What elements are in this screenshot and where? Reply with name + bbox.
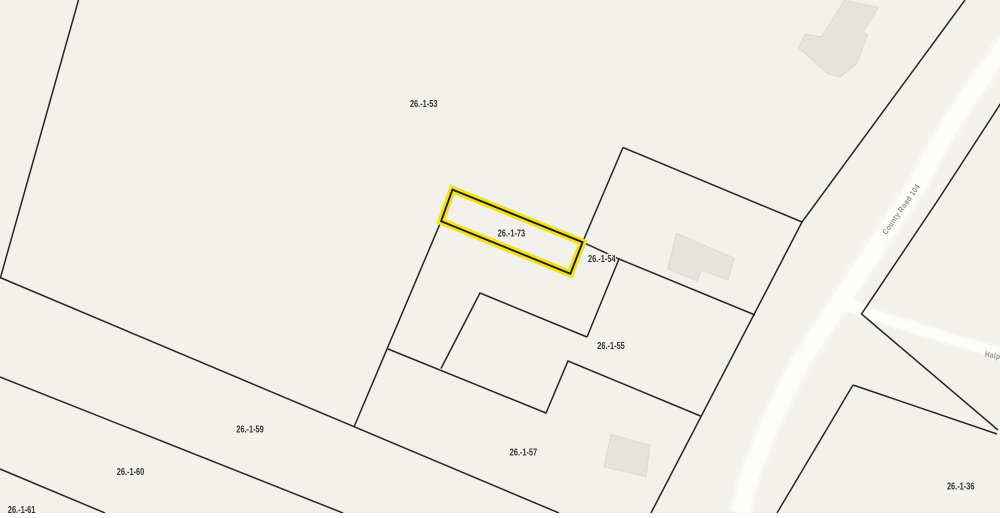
svg-text:26.-1-55: 26.-1-55 <box>597 340 625 351</box>
svg-text:26.-1-73: 26.-1-73 <box>498 227 526 238</box>
svg-text:26.-1-59: 26.-1-59 <box>236 423 264 434</box>
svg-text:26.-1-36: 26.-1-36 <box>947 480 975 491</box>
svg-text:26.-1-57: 26.-1-57 <box>510 446 538 457</box>
svg-text:26.-1-61: 26.-1-61 <box>8 504 36 513</box>
svg-text:26.-1-53: 26.-1-53 <box>410 98 438 109</box>
svg-text:26.-1-60: 26.-1-60 <box>117 466 145 477</box>
svg-text:26.-1-54: 26.-1-54 <box>588 253 616 264</box>
